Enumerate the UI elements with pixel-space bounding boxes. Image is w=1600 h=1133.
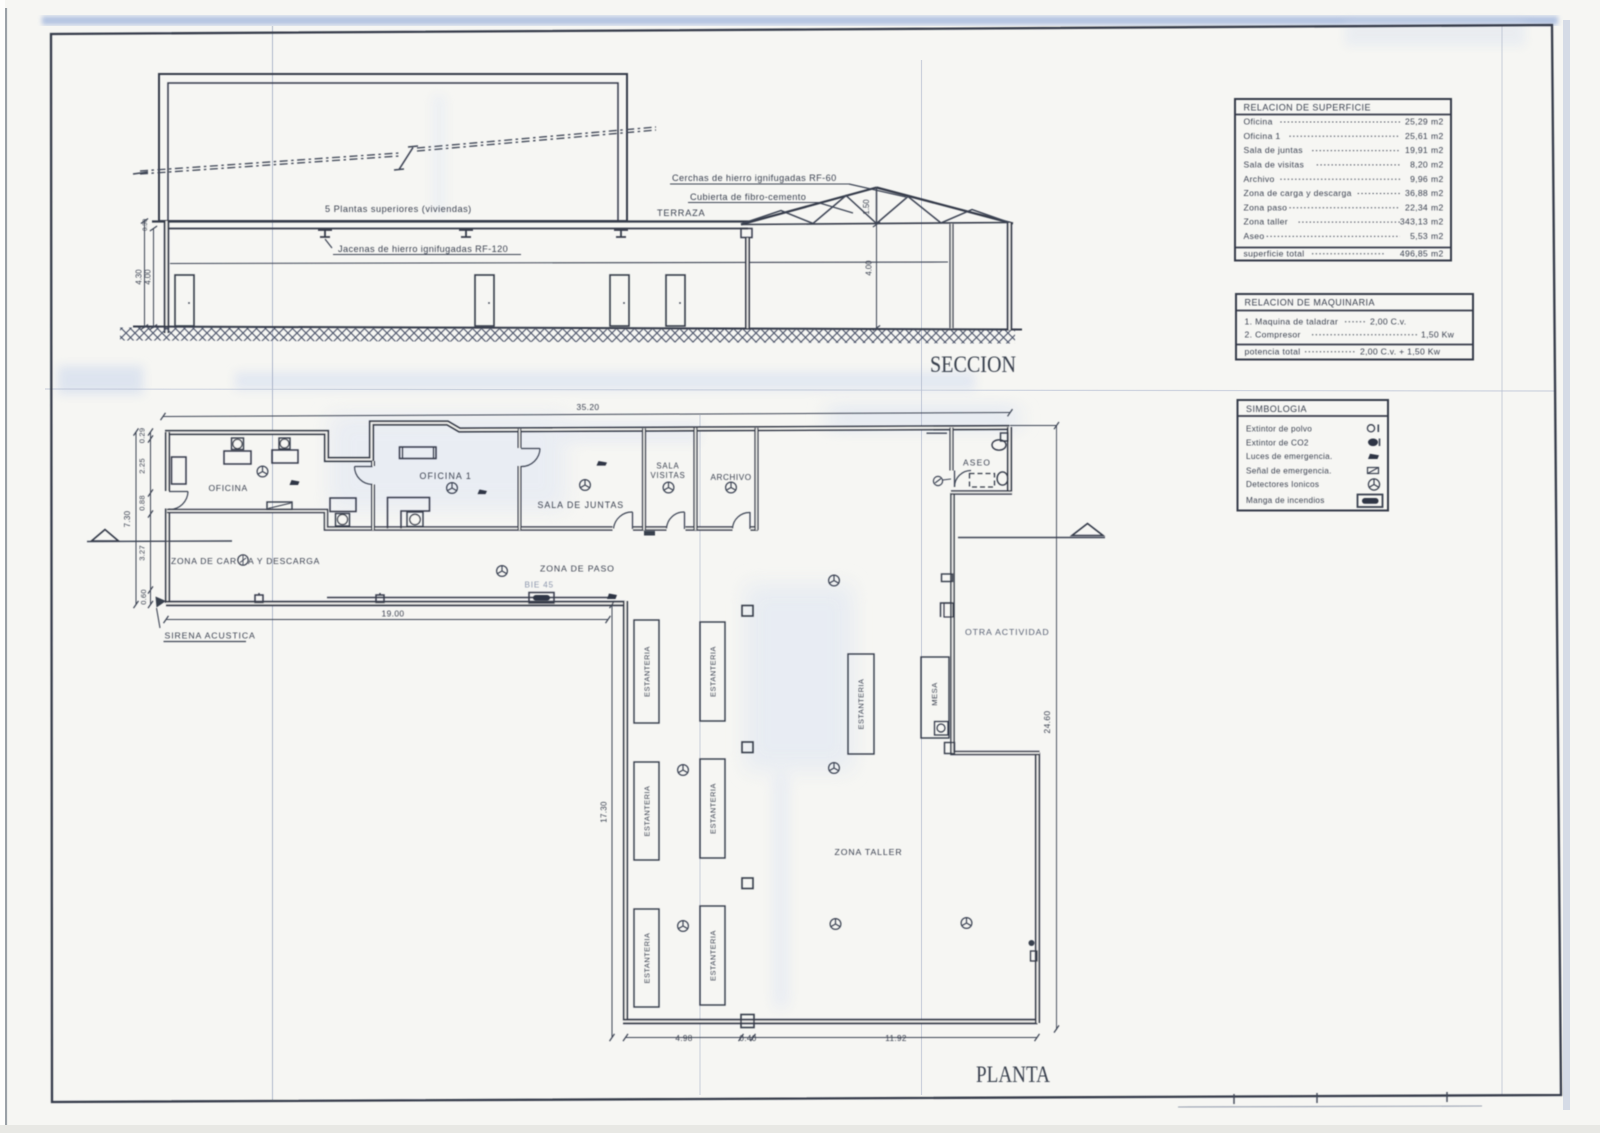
svg-text:24.60: 24.60 bbox=[1042, 711, 1052, 734]
svg-text:ESTANTERIA: ESTANTERIA bbox=[643, 786, 652, 837]
svg-text:1,50 Kw: 1,50 Kw bbox=[1421, 330, 1455, 340]
svg-text:ZONA DE CAR: ZONA DE CAR bbox=[171, 556, 237, 566]
svg-text:A Y DESCARGA: A Y DESCARGA bbox=[248, 556, 320, 566]
svg-text:Sala de juntas: Sala de juntas bbox=[1244, 145, 1303, 155]
svg-text:m2: m2 bbox=[1431, 174, 1444, 184]
svg-text:m2: m2 bbox=[1431, 145, 1444, 155]
svg-text:SIRENA ACUSTICA: SIRENA ACUSTICA bbox=[165, 631, 256, 641]
svg-text:ESTANTERIA: ESTANTERIA bbox=[709, 783, 718, 834]
svg-text:Extintor de polvo: Extintor de polvo bbox=[1246, 425, 1312, 434]
svg-text:0.88: 0.88 bbox=[138, 495, 147, 511]
svg-text:RELACION DE MAQUINARIA: RELACION DE MAQUINARIA bbox=[1245, 298, 1375, 308]
svg-text:ESTANTERIA: ESTANTERIA bbox=[857, 679, 866, 730]
svg-text:Zona paso: Zona paso bbox=[1244, 202, 1288, 212]
svg-text:Zona taller: Zona taller bbox=[1244, 217, 1288, 227]
svg-text:0.30: 0.30 bbox=[142, 218, 149, 231]
svg-text:ARCHIVO: ARCHIVO bbox=[711, 473, 752, 482]
svg-text:496,85: 496,85 bbox=[1400, 249, 1428, 259]
svg-text:Luces de emergencia.: Luces de emergencia. bbox=[1246, 452, 1333, 461]
svg-text:SALA: SALA bbox=[656, 462, 679, 471]
svg-text:ESTANTERIA: ESTANTERIA bbox=[709, 930, 718, 981]
svg-text:9,96: 9,96 bbox=[1410, 174, 1428, 184]
svg-text:SALA DE JUNTAS: SALA DE JUNTAS bbox=[538, 500, 625, 510]
svg-text:m2: m2 bbox=[1431, 202, 1444, 212]
svg-text:0.29: 0.29 bbox=[138, 428, 147, 444]
svg-text:5,53: 5,53 bbox=[1410, 231, 1428, 241]
svg-text:19,91: 19,91 bbox=[1405, 145, 1428, 155]
svg-text:2,00 C.v.: 2,00 C.v. bbox=[1370, 317, 1406, 327]
svg-text:Cubierta de fibro-cemento: Cubierta de fibro-cemento bbox=[690, 192, 806, 202]
svg-text:4.98: 4.98 bbox=[675, 1034, 692, 1043]
svg-text:Zona de carga y descarga: Zona de carga y descarga bbox=[1244, 188, 1352, 198]
svg-text:4.00: 4.00 bbox=[144, 269, 153, 285]
svg-text:MESA: MESA bbox=[930, 682, 939, 706]
svg-text:25,61: 25,61 bbox=[1405, 131, 1428, 141]
svg-text:m2: m2 bbox=[1431, 249, 1444, 259]
svg-text:m2: m2 bbox=[1431, 131, 1444, 141]
svg-text:1.50: 1.50 bbox=[862, 199, 871, 215]
svg-text:ZONA TALLER: ZONA TALLER bbox=[835, 847, 903, 857]
svg-text:ESTANTERIA: ESTANTERIA bbox=[643, 646, 652, 697]
svg-text:25,29: 25,29 bbox=[1405, 117, 1428, 127]
svg-text:VISITAS: VISITAS bbox=[651, 471, 686, 480]
svg-text:7.30: 7.30 bbox=[123, 510, 132, 527]
svg-text:Detectores Ionicos: Detectores Ionicos bbox=[1246, 480, 1319, 489]
svg-text:ESTANTERIA: ESTANTERIA bbox=[709, 646, 718, 697]
svg-text:Manga de incendios: Manga de incendios bbox=[1246, 496, 1325, 505]
svg-text:Jacenas de hierro ignifugadas: Jacenas de hierro ignifugadas RF-120 bbox=[338, 244, 508, 254]
svg-text:m2: m2 bbox=[1431, 217, 1444, 227]
svg-text:Aseo: Aseo bbox=[1244, 231, 1265, 241]
svg-text:Señal de emergencia.: Señal de emergencia. bbox=[1246, 466, 1332, 475]
svg-text:35.20: 35.20 bbox=[577, 402, 600, 412]
svg-text:5 Plantas superiores (vivienda: 5 Plantas superiores (viviendas) bbox=[325, 204, 472, 214]
svg-text:SIMBOLOGIA: SIMBOLOGIA bbox=[1246, 404, 1307, 414]
svg-text:Oficina 1: Oficina 1 bbox=[1244, 131, 1281, 141]
svg-text:m2: m2 bbox=[1431, 188, 1444, 198]
svg-text:m2: m2 bbox=[1431, 231, 1444, 241]
svg-text:ZONA DE PASO: ZONA DE PASO bbox=[540, 564, 615, 574]
svg-text:OTRA ACTIVIDAD: OTRA ACTIVIDAD bbox=[965, 627, 1050, 637]
svg-text:22,34: 22,34 bbox=[1405, 202, 1428, 212]
svg-text:OFICINA: OFICINA bbox=[209, 483, 248, 493]
svg-text:4.30: 4.30 bbox=[135, 269, 144, 285]
svg-text:Sala de visitas: Sala de visitas bbox=[1244, 160, 1305, 170]
svg-text:Cerchas de hierro ignifugadas: Cerchas de hierro ignifugadas RF-60 bbox=[672, 173, 837, 183]
svg-text:3.27: 3.27 bbox=[138, 545, 147, 561]
svg-text:Oficina: Oficina bbox=[1244, 117, 1273, 127]
svg-text:2.25: 2.25 bbox=[138, 458, 147, 474]
svg-text:2. Compresor: 2. Compresor bbox=[1245, 330, 1301, 340]
svg-text:m2: m2 bbox=[1431, 160, 1444, 170]
svg-text:17.30: 17.30 bbox=[600, 801, 609, 823]
svg-text:4.00: 4.00 bbox=[865, 260, 874, 276]
svg-text:TERRAZA: TERRAZA bbox=[657, 208, 706, 218]
svg-text:potencia total: potencia total bbox=[1245, 347, 1301, 357]
svg-text:ASEO: ASEO bbox=[963, 458, 991, 468]
svg-text:0.40: 0.40 bbox=[739, 1034, 756, 1043]
svg-text:0.60: 0.60 bbox=[139, 589, 148, 605]
svg-text:36,88: 36,88 bbox=[1405, 188, 1428, 198]
svg-text:8,20: 8,20 bbox=[1410, 160, 1428, 170]
svg-text:343,13: 343,13 bbox=[1400, 217, 1428, 227]
svg-text:m2: m2 bbox=[1431, 117, 1444, 127]
svg-text:Archivo: Archivo bbox=[1244, 174, 1275, 184]
svg-text:19.00: 19.00 bbox=[382, 609, 405, 619]
svg-text:BIE 45: BIE 45 bbox=[525, 581, 554, 590]
svg-text:superficie total: superficie total bbox=[1244, 249, 1305, 259]
svg-text:PLANTA: PLANTA bbox=[976, 1062, 1050, 1088]
svg-text:11.92: 11.92 bbox=[885, 1034, 907, 1043]
svg-text:OFICINA 1: OFICINA 1 bbox=[420, 471, 472, 481]
svg-text:ESTANTERIA: ESTANTERIA bbox=[643, 933, 652, 984]
svg-text:1. Maquina de taladrar: 1. Maquina de taladrar bbox=[1245, 317, 1339, 327]
svg-text:Extintor de CO2: Extintor de CO2 bbox=[1246, 438, 1309, 447]
svg-text:2,00 C.v. + 1,50 Kw: 2,00 C.v. + 1,50 Kw bbox=[1360, 347, 1441, 357]
svg-text:SECCION: SECCION bbox=[930, 352, 1016, 378]
svg-text:RELACION DE SUPERFICIE: RELACION DE SUPERFICIE bbox=[1244, 103, 1371, 113]
